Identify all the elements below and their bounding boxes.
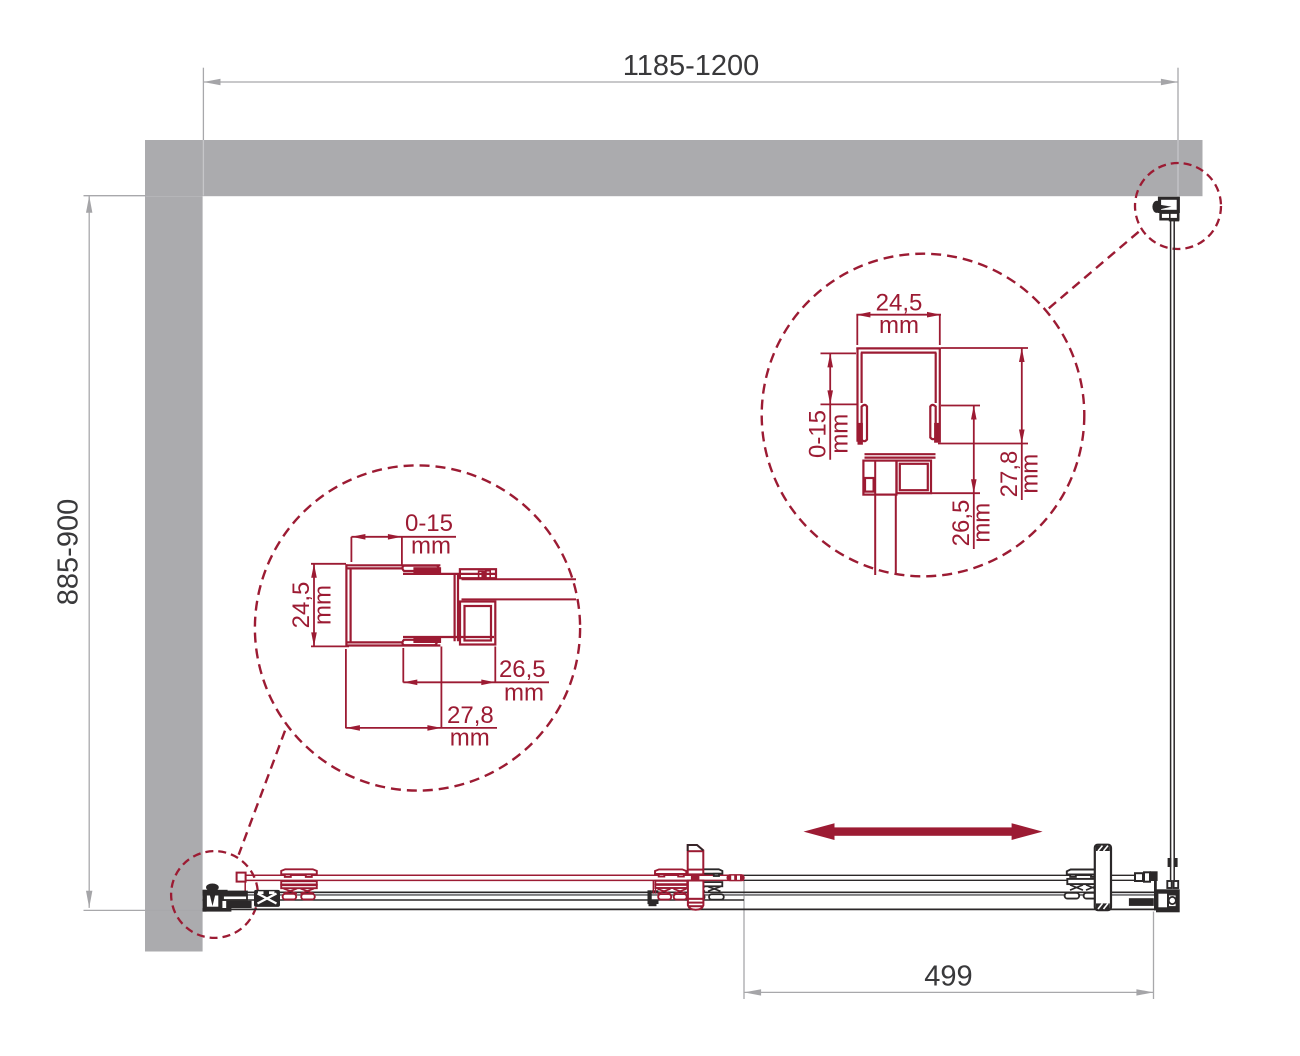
svg-text:mm: mm xyxy=(826,414,853,454)
svg-text:mm: mm xyxy=(1017,454,1044,494)
svg-text:mm: mm xyxy=(504,680,544,707)
svg-text:mm: mm xyxy=(879,312,919,339)
svg-text:mm: mm xyxy=(310,585,337,625)
svg-text:mm: mm xyxy=(450,725,490,752)
svg-text:mm: mm xyxy=(969,503,996,543)
svg-text:885-900: 885-900 xyxy=(53,499,85,605)
svg-text:1185-1200: 1185-1200 xyxy=(623,50,760,82)
svg-text:mm: mm xyxy=(411,533,451,560)
svg-text:499: 499 xyxy=(924,960,972,992)
